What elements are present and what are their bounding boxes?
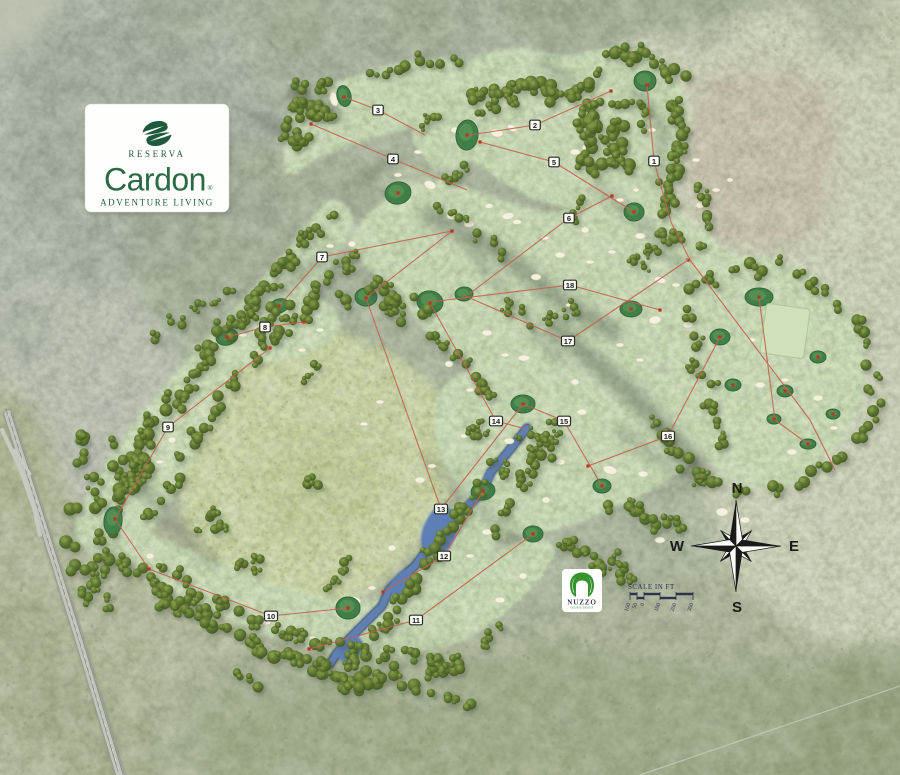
svg-text:E: E — [789, 538, 799, 555]
svg-text:3: 3 — [376, 106, 380, 115]
svg-text:N: N — [732, 480, 743, 497]
svg-text:12: 12 — [440, 552, 448, 561]
svg-text:W: W — [670, 538, 685, 555]
svg-text:18: 18 — [566, 281, 574, 290]
svg-text:11: 11 — [412, 616, 421, 625]
svg-text:16: 16 — [664, 432, 672, 441]
svg-text:14: 14 — [492, 417, 501, 426]
svg-text:6: 6 — [567, 214, 571, 223]
svg-text:8: 8 — [263, 323, 267, 332]
svg-text:SCALE IN FT: SCALE IN FT — [628, 583, 675, 591]
svg-text:®: ® — [208, 184, 213, 192]
svg-text:S: S — [732, 599, 742, 616]
svg-text:9: 9 — [166, 423, 170, 432]
svg-text:10: 10 — [267, 612, 275, 621]
svg-text:ADVENTURE LIVING: ADVENTURE LIVING — [100, 198, 214, 208]
svg-text:NUZZO: NUZZO — [567, 599, 597, 607]
svg-text:13: 13 — [437, 505, 445, 514]
svg-text:7: 7 — [320, 253, 324, 262]
svg-text:2: 2 — [533, 121, 537, 130]
svg-text:COURSE DESIGN: COURSE DESIGN — [571, 607, 594, 610]
svg-text:Cardon: Cardon — [104, 162, 206, 198]
svg-text:17: 17 — [564, 337, 572, 346]
svg-text:15: 15 — [560, 417, 569, 426]
svg-text:RESERVA: RESERVA — [128, 149, 185, 159]
